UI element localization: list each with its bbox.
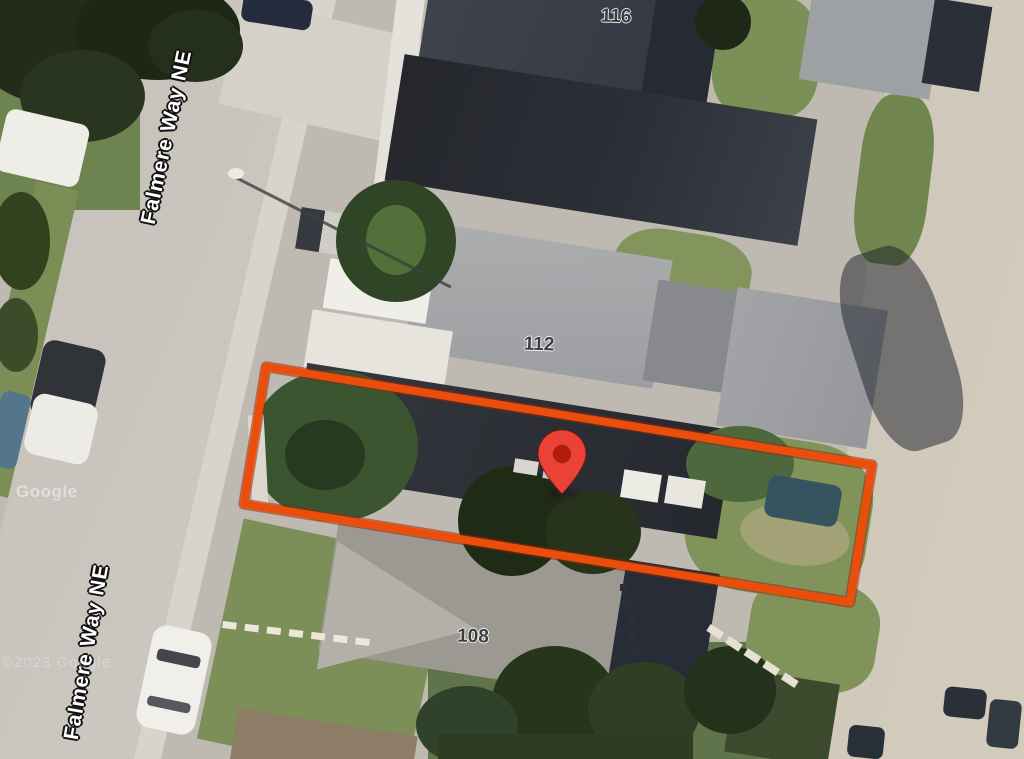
parked-car-dark — [986, 698, 1023, 749]
roof-vent-dot — [620, 584, 629, 591]
conifer-highlight — [366, 205, 426, 275]
roof-vent-dot — [629, 632, 638, 639]
hedge-bottom — [438, 734, 693, 759]
pin-center-dot — [553, 445, 571, 463]
roof-vent-dot — [626, 616, 635, 623]
roof-vent-dot — [623, 600, 632, 607]
house-number-116: 116 — [600, 5, 631, 28]
tree — [148, 10, 243, 82]
roof-vent-dot — [632, 648, 641, 655]
parked-car-dark — [943, 686, 988, 720]
parked-car-dark — [846, 724, 885, 759]
car-rear-window — [146, 695, 191, 714]
lamp-head — [228, 168, 244, 179]
car-windshield — [156, 648, 202, 669]
copyright-watermark: ©2023 Google — [2, 654, 111, 671]
house-number-108: 108 — [457, 625, 489, 648]
roof-gray-topright — [799, 0, 945, 100]
google-watermark: Google — [16, 482, 78, 502]
location-pin[interactable] — [538, 430, 586, 494]
satellite-map-canvas[interactable]: Falmere Way NE Falmere Way NE 116 112 10… — [0, 0, 1024, 759]
house-number-112: 112 — [523, 333, 554, 356]
